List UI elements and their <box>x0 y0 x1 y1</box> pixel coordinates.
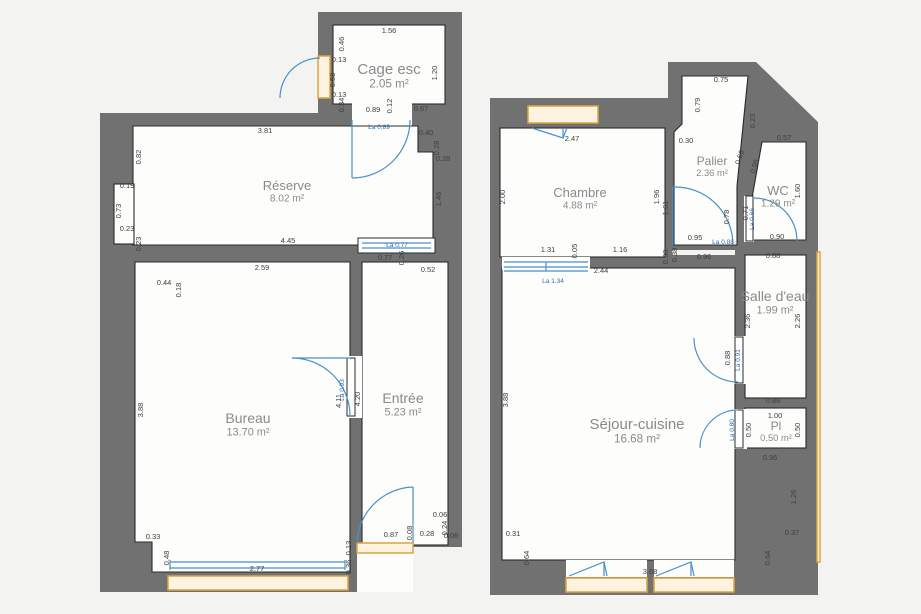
dimension-label: 0.12 <box>385 99 394 114</box>
dimension-label: 0.28 <box>420 529 435 538</box>
door-width-label: La 0.80 <box>729 419 736 441</box>
door-width-label: La 0.66 <box>749 208 756 230</box>
dimension-label: 1.96 <box>652 190 661 205</box>
dimension-label: 0.88 <box>766 396 781 405</box>
dimension-label: 2.44 <box>594 266 609 275</box>
dimension-label: 0.88 <box>766 251 781 260</box>
room-label: Salle d'eau <box>741 288 810 304</box>
dimension-label: 0.06 <box>433 510 448 519</box>
room-label: Chambre <box>553 185 606 200</box>
door-width-label: La 0.91 <box>735 349 742 371</box>
plan-right <box>490 62 820 595</box>
dimension-label: 1.20 <box>430 66 439 81</box>
dimension-label: 0.33 <box>146 532 161 541</box>
dimension-label: 0.13 <box>344 541 353 556</box>
dimension-label: 0.89 <box>366 105 381 114</box>
dimension-label: 1.31 <box>541 245 556 254</box>
dimension-label: 0.90 <box>770 232 785 241</box>
dimension-label: 0.64 <box>763 551 772 566</box>
dimension-label: 0.26 <box>397 251 406 266</box>
room-area-label: 2.36 m² <box>696 168 728 178</box>
dimension-label: 0.40 <box>419 128 434 137</box>
room-area-label: 4.88 m² <box>563 201 598 212</box>
dimension-label: 0.38 <box>661 250 670 265</box>
dimension-label: 0.36 <box>344 560 353 575</box>
window-sill-bureau <box>168 576 348 590</box>
dimension-label: 0.82 <box>134 150 143 165</box>
dimension-label: 0.13 <box>332 55 347 64</box>
room-label: Bureau <box>225 410 270 426</box>
dimension-label: 2.77 <box>250 564 265 573</box>
door-width-label: La 0.89 <box>368 124 390 131</box>
dimension-label: 0.64 <box>522 551 531 566</box>
exterior-step <box>357 553 413 592</box>
dimension-label: 0.23 <box>748 114 757 129</box>
door-width-label: La 0.88 <box>712 239 734 246</box>
dimension-label: 0.18 <box>174 283 183 298</box>
dimension-label: 0.95 <box>688 233 703 242</box>
dimension-label: 0.05 <box>570 244 579 259</box>
dimension-label: 0.77 <box>378 253 393 262</box>
room-area-label: 5.23 m² <box>385 407 422 419</box>
dimension-label: 2.47 <box>565 134 580 143</box>
dimension-label: 0.38 <box>670 248 679 263</box>
dimension-label: 0.78 <box>722 210 731 225</box>
dimension-label: 0.57 <box>777 133 792 142</box>
room-label: Entrée <box>382 390 423 406</box>
dimension-label: 0.96 <box>697 252 712 261</box>
dimension-label: 0.23 <box>120 224 135 233</box>
dimension-label: 0.08 <box>405 526 414 541</box>
room-area-label: 1.99 m² <box>757 305 794 317</box>
door-arc-cage-esc <box>280 58 320 98</box>
dimension-label: 0.79 <box>693 98 702 113</box>
dimension-label: 0.73 <box>114 204 123 219</box>
sill-right-edge <box>817 252 820 562</box>
dimension-label: 4.45 <box>281 236 296 245</box>
room-sejour-cuisine <box>502 268 735 560</box>
dimension-label: 0.19 <box>120 181 135 190</box>
dimension-label: 0.31 <box>506 529 521 538</box>
dimension-label: 0.44 <box>157 278 172 287</box>
room-label: Cage esc <box>357 61 421 78</box>
floor-plan-drawing: Cage esc2.05 m²Réserve8.02 m²Bureau13.70… <box>0 0 921 614</box>
room-label: Palier <box>697 154 728 168</box>
door-leaf-pl <box>735 410 743 448</box>
room-area-label: 1.29 m² <box>761 199 796 210</box>
dimension-label: 3.68 <box>643 567 658 576</box>
dimension-label: 0.34 <box>337 98 346 113</box>
dimension-label: 0.75 <box>714 75 729 84</box>
room-label: Réserve <box>263 178 311 193</box>
dimension-label: 3.81 <box>258 126 273 135</box>
room-label: WC <box>767 183 789 198</box>
door-width-label: La 0.93 <box>339 379 346 401</box>
dimension-label: 0.52 <box>421 265 436 274</box>
dimension-label: 0.48 <box>162 551 171 566</box>
room-area-label: 0.50 m² <box>760 433 792 443</box>
dimension-label: 0.37 <box>785 528 800 537</box>
dimension-label: 1.61 <box>661 201 670 216</box>
dimension-label: 0.46 <box>337 37 346 52</box>
room-area-label: 8.02 m² <box>270 194 305 205</box>
dimension-label: 1.60 <box>793 184 802 199</box>
dimension-label: 1.26 <box>789 490 798 505</box>
plan-left <box>100 12 462 592</box>
dimension-label: 0.96 <box>763 453 778 462</box>
door-sill-entree <box>357 543 413 553</box>
dimension-label: 3.88 <box>501 393 510 408</box>
window-sill-chambre <box>528 106 598 123</box>
dimension-label: 0.06 <box>444 531 459 540</box>
dimension-label: 3.88 <box>136 403 145 418</box>
dimension-label: 1.56 <box>382 26 397 35</box>
dimension-label: 0.28 <box>436 154 451 163</box>
dimension-label: 4.20 <box>353 392 362 407</box>
dimension-label: 1.00 <box>768 411 783 420</box>
room-area-label: 2.05 m² <box>369 78 409 91</box>
door-width-label: La 0.77 <box>386 242 408 249</box>
dimension-label: 0.67 <box>414 104 429 113</box>
dimension-label: 2.59 <box>255 263 270 272</box>
room-area-label: 13.70 m² <box>226 427 269 439</box>
room-label: Pl <box>771 419 782 433</box>
dimension-label: 0.50 <box>744 423 753 438</box>
dimension-label: 2.26 <box>793 314 802 329</box>
dimension-label: 0.53 <box>328 73 337 88</box>
room-area-label: 16.68 m² <box>614 433 660 446</box>
window-sill-sejour-right <box>654 578 734 592</box>
door-width-label: La 1.34 <box>542 278 564 285</box>
dimension-label: 1.16 <box>613 245 628 254</box>
dimension-label: 0.23 <box>134 237 143 252</box>
dimension-label: 0.30 <box>679 136 694 145</box>
dimension-label: 2.00 <box>498 190 507 205</box>
floor-plan-canvas: Cage esc2.05 m²Réserve8.02 m²Bureau13.70… <box>0 0 921 614</box>
room-label: Séjour-cuisine <box>589 416 684 433</box>
dimension-label: 0.50 <box>793 423 802 438</box>
dimension-label: 0.13 <box>332 90 347 99</box>
window-sill-sejour-left <box>566 578 647 592</box>
dimension-label: 2.36 <box>743 314 752 329</box>
dimension-label: 0.87 <box>384 530 399 539</box>
door-leaf-bureau-entree <box>347 358 355 416</box>
dimension-label: 1.46 <box>434 192 443 207</box>
dimension-label: 0.88 <box>723 351 732 366</box>
